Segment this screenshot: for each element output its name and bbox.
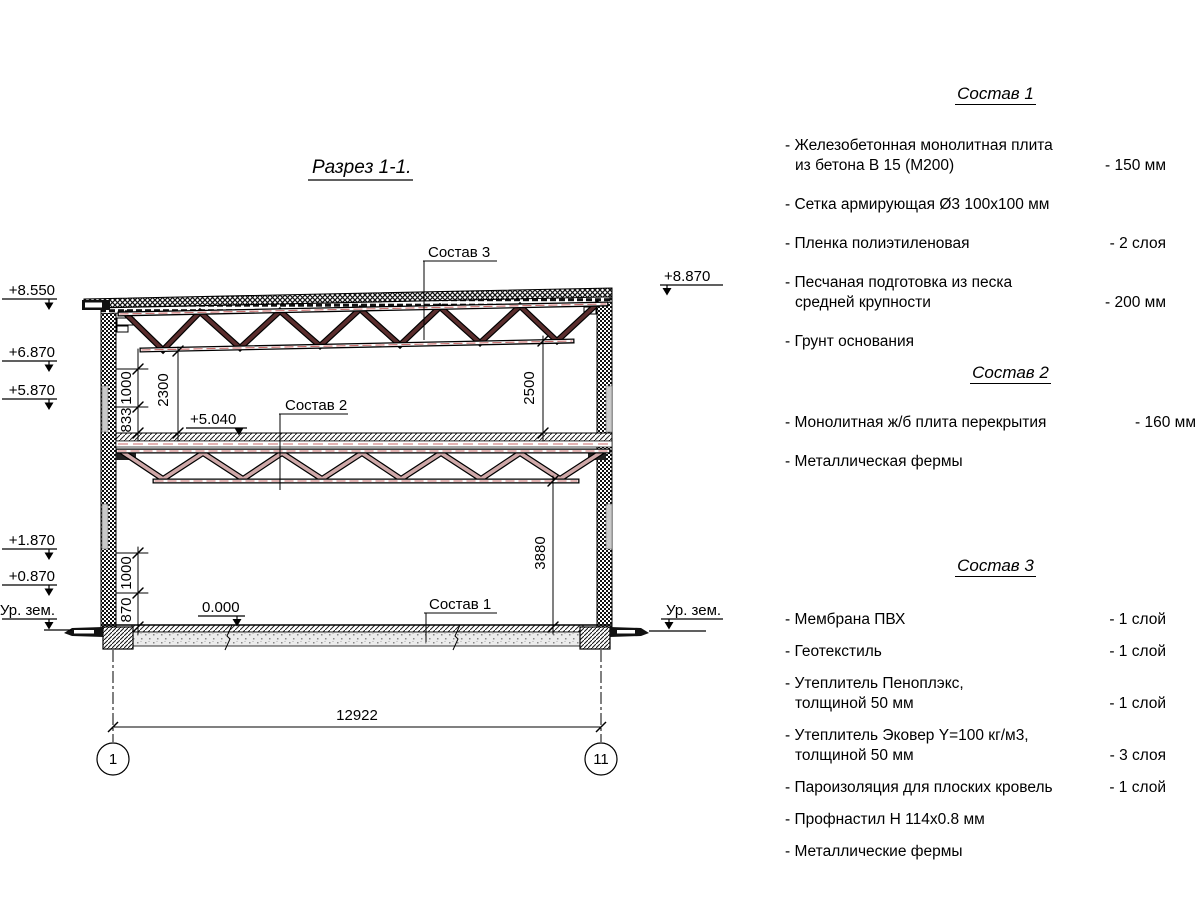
composition-list-1: Состав 1 - Железобетонная монолитная пли…: [760, 84, 1200, 371]
floor-slab: [116, 433, 612, 447]
composition-title: Состав 3: [785, 556, 1166, 580]
svg-text:Ур. зем.: Ур. зем.: [666, 602, 721, 619]
dim-3880: 3880: [532, 536, 549, 569]
elevation-mark-5870: +5.870: [2, 382, 57, 410]
composition-item: - Пароизоляция для плоских кровель - 1 с…: [785, 778, 1166, 798]
ground-floor: [44, 625, 706, 650]
dimension-chains: 1000 833 2300 2500 1000 870 3880: [116, 336, 558, 634]
dim-upper-833: 833: [118, 407, 135, 432]
elevation-mark-8550: +8.550: [2, 282, 57, 310]
composition-title: Состав 2: [785, 363, 1196, 387]
composition-item: - Песчаная подготовка из пескасредней кр…: [785, 273, 1166, 313]
svg-text:+5.870: +5.870: [9, 382, 55, 399]
panel-joint: [102, 504, 108, 549]
composition-item: - Пленка полиэтиленовая - 2 слоя: [785, 234, 1166, 254]
composition-item: - Утеплитель Пеноплэкс,толщиной 50 мм - …: [785, 674, 1166, 714]
composition-item: - Металлическая фермы: [785, 452, 1196, 472]
elevation-mark-1870: +1.870: [2, 532, 57, 560]
foundation-left: [103, 627, 133, 649]
panel-joint: [606, 386, 612, 432]
composition-title: Состав 1: [785, 84, 1166, 108]
elevation-mark-6870: +6.870: [2, 344, 57, 372]
composition-item: - Утеплитель Эковер Y=100 кг/м3,толщиной…: [785, 726, 1166, 766]
composition-list-3: Состав 3 - Мембрана ПВХ - 1 слой - Геоте…: [760, 556, 1200, 874]
right-wall: [597, 289, 612, 632]
svg-text:+6.870: +6.870: [9, 344, 55, 361]
elevation-mark-ground-left: Ур. зем.: [0, 602, 57, 630]
elevation-mark-ground-right: Ур. зем.: [661, 602, 723, 630]
svg-text:+1.870: +1.870: [9, 532, 55, 549]
drawing-sheet: Разрез 1-1.: [0, 0, 1200, 900]
axis-number-1: 1: [109, 751, 117, 768]
drawing-title: Разрез 1-1.: [308, 157, 413, 180]
composition-item: - Железобетонная монолитная плитаиз бето…: [785, 136, 1166, 176]
svg-text:0.000: 0.000: [202, 599, 240, 616]
elevation-mark-8870: +8.870: [660, 268, 723, 296]
svg-text:+8.550: +8.550: [9, 282, 55, 299]
axis-number-11: 11: [593, 751, 609, 768]
composition-item: - Геотекстиль - 1 слой: [785, 642, 1166, 662]
truss-web: [124, 453, 600, 479]
svg-text:+5.040: +5.040: [190, 411, 236, 428]
section-drawing: Разрез 1-1.: [0, 0, 760, 900]
composition-item: - Металлические фермы: [785, 842, 1166, 862]
dim-upper-1000: 1000: [118, 371, 135, 404]
composition-item: - Грунт основания: [785, 332, 1166, 352]
left-wall: [101, 306, 116, 632]
dim-overall-12922: 12922: [336, 707, 378, 724]
svg-text:Состав 2: Состав 2: [285, 397, 347, 414]
roof-truss: [117, 304, 606, 350]
panel-joint: [102, 386, 108, 432]
floor-truss: [116, 449, 608, 481]
bottom-chord-centerline: [142, 341, 572, 350]
dim-2300: 2300: [155, 373, 172, 406]
elevation-mark-5040: +5.040: [186, 411, 247, 436]
svg-text:+8.870: +8.870: [664, 268, 710, 285]
elevation-mark-0870: +0.870: [2, 568, 57, 596]
dim-2500: 2500: [521, 371, 538, 404]
dim-lower-870: 870: [118, 597, 135, 622]
composition-list-2: Состав 2 - Монолитная ж/б плита перекрыт…: [760, 363, 1200, 491]
overall-dimension: 12922 1 11: [97, 650, 617, 775]
dim-lower-1000: 1000: [118, 556, 135, 589]
composition-item: - Сетка армирующая Ø3 100х100 мм: [785, 195, 1166, 215]
composition-item: - Мембрана ПВХ - 1 слой: [785, 610, 1166, 630]
composition-item: - Профнастил Н 114х0.8 мм: [785, 810, 1166, 830]
panel-joint: [606, 504, 612, 549]
elevation-mark-0000: 0.000: [198, 599, 245, 627]
svg-text:Состав 3: Состав 3: [428, 244, 490, 261]
svg-text:+0.870: +0.870: [9, 568, 55, 585]
truss-support: [117, 326, 128, 332]
svg-text:Разрез 1-1.: Разрез 1-1.: [312, 157, 411, 178]
svg-text:Ур. зем.: Ур. зем.: [0, 602, 55, 619]
composition-item: - Монолитная ж/б плита перекрытия - 160 …: [785, 413, 1196, 433]
svg-text:Состав 1: Состав 1: [429, 596, 491, 613]
foundation-right: [580, 627, 610, 649]
